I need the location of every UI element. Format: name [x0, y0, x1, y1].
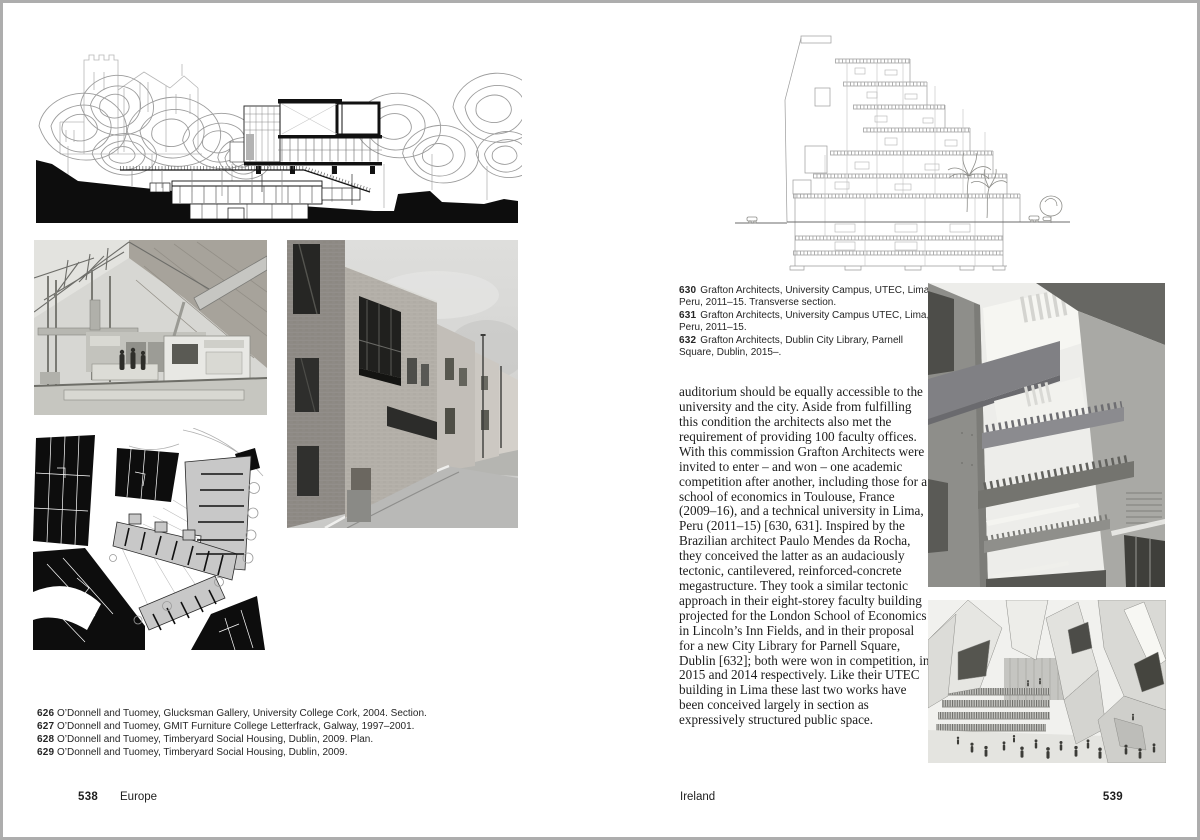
caption-626: 626O’Donnell and Tuomey, Glucksman Galle… — [37, 707, 517, 720]
figure-632-parnell-library-render — [928, 600, 1166, 763]
caption-text: Grafton Architects, University Campus, U… — [679, 285, 932, 308]
photo-629 — [287, 240, 518, 528]
photo-627 — [34, 240, 267, 415]
caption-text: O’Donnell and Tuomey, Timberyard Social … — [57, 734, 373, 745]
figure-627-furniture-college-photo — [34, 240, 267, 415]
figure-630-utec-section-drawing — [735, 30, 1070, 273]
left-page-number: 538 — [78, 791, 98, 803]
caption-text: O’Donnell and Tuomey, Timberyard Social … — [57, 747, 348, 758]
caption-text: Grafton Architects, Dublin City Library,… — [679, 335, 903, 358]
caption-631: 631Grafton Architects, University Campus… — [679, 310, 937, 335]
foreground-brick-pier — [287, 240, 345, 528]
photo-632 — [928, 600, 1166, 763]
photo-631 — [928, 283, 1165, 587]
caption-number: 628 — [37, 733, 57, 746]
running-footer: 538 Europe Ireland 539 — [0, 791, 1200, 807]
caption-632: 632Grafton Architects, Dublin City Libra… — [679, 335, 937, 360]
caption-text: Grafton Architects, University Campus UT… — [679, 310, 929, 333]
left-section-label: Europe — [120, 791, 157, 803]
caption-627: 627O’Donnell and Tuomey, GMIT Furniture … — [37, 720, 517, 733]
caption-text: O’Donnell and Tuomey, GMIT Furniture Col… — [57, 721, 414, 732]
body-text: auditorium should be equally accessible … — [679, 385, 931, 728]
caption-number: 626 — [37, 707, 57, 720]
caption-628: 628O’Donnell and Tuomey, Timberyard Soci… — [37, 733, 517, 746]
figure-631-utec-atrium-photo — [928, 283, 1165, 587]
left-caption-block: 626O’Donnell and Tuomey, Glucksman Galle… — [37, 707, 517, 759]
caption-629: 629O’Donnell and Tuomey, Timberyard Soci… — [37, 746, 517, 759]
caption-text: O’Donnell and Tuomey, Glucksman Gallery,… — [57, 708, 427, 719]
figure-628-timberyard-plan — [33, 428, 265, 650]
plan-628 — [33, 428, 265, 650]
right-section-label: Ireland — [680, 791, 715, 803]
caption-630: 630Grafton Architects, University Campus… — [679, 285, 937, 310]
figure-629-timberyard-photo — [287, 240, 518, 528]
book-spread: 626O’Donnell and Tuomey, Glucksman Galle… — [0, 0, 1200, 840]
right-caption-block: 630Grafton Architects, University Campus… — [679, 285, 937, 359]
section-drawing-630 — [735, 30, 1070, 273]
caption-number: 630 — [679, 285, 696, 297]
caption-number: 631 — [679, 310, 696, 322]
caption-number: 632 — [679, 335, 696, 347]
right-page-number: 539 — [1093, 791, 1123, 803]
section-drawing-626 — [32, 42, 522, 224]
figure-626-glucksman-section-drawing — [32, 42, 522, 224]
caption-number: 629 — [37, 746, 57, 759]
caption-number: 627 — [37, 720, 57, 733]
